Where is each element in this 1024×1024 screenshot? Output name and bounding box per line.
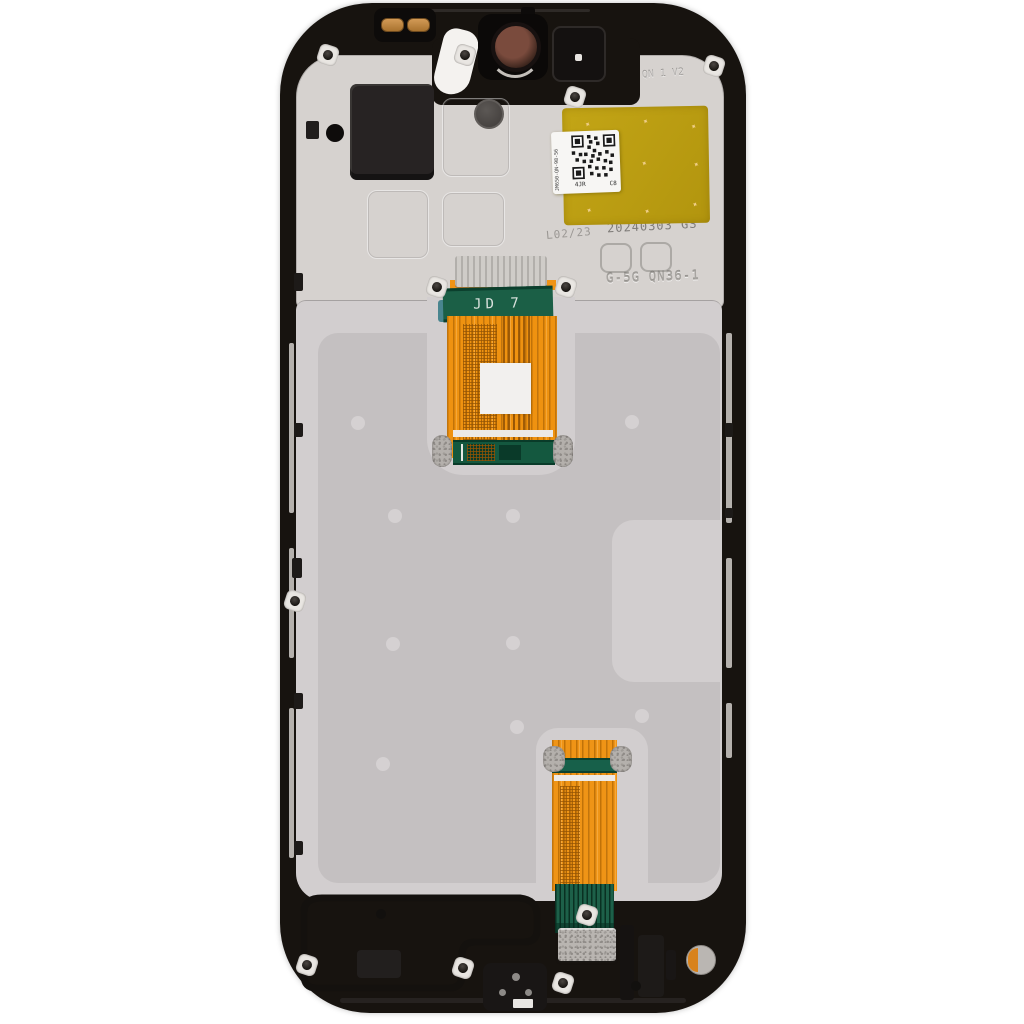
screw-boss — [631, 981, 641, 991]
coil-contact-copper — [688, 948, 698, 972]
microphone-hole — [326, 124, 344, 142]
frame-inner-rail — [726, 558, 732, 668]
product-photo-canvas: 20240303 GS G-5G QN36-1 L02/23 QN 1 V2 ✦… — [0, 0, 1024, 1024]
sponge-pad — [610, 746, 632, 772]
frame-clip — [306, 121, 319, 139]
sponge-pad — [432, 435, 452, 467]
frame-notch — [294, 841, 303, 855]
qr-label-side-text: JM650-QN-98-56 — [553, 135, 561, 191]
plate-dimple — [386, 637, 400, 651]
plate-dimple — [625, 415, 639, 429]
bottom-black-component — [666, 950, 676, 980]
frame-inner-rail — [289, 708, 294, 858]
qr-label-bottom-left: 4JR — [575, 181, 586, 188]
qr-label-bottom-right: C8 — [609, 180, 616, 187]
plate-dimple — [506, 509, 520, 523]
speaker-shield-back — [350, 84, 434, 180]
earpiece-sensor-module — [552, 26, 606, 82]
bottom-flex-shield — [558, 928, 616, 961]
embossed-panel-outline — [367, 190, 429, 259]
embossed-square — [600, 243, 632, 273]
frame-notch — [294, 693, 303, 709]
bracket-label — [513, 999, 533, 1008]
sensor-window — [575, 54, 582, 61]
plate-dimple — [388, 509, 402, 523]
frame-notch — [725, 508, 733, 518]
coil-contact — [686, 945, 716, 975]
embossed-panel-outline — [442, 192, 505, 247]
charging-port-bracket — [483, 963, 547, 1011]
bottom-flex-trace-hatch — [560, 786, 580, 886]
flex-green-band-bottom — [453, 440, 555, 465]
embossed-panel-outline — [442, 98, 510, 177]
bracket-hole — [499, 989, 506, 996]
frame-notch — [294, 273, 303, 291]
flex-band-mark — [461, 444, 463, 461]
sponge-pad — [553, 435, 573, 467]
plate-dimple — [635, 709, 649, 723]
antenna-line — [430, 9, 590, 12]
flex-white-strip — [453, 430, 553, 437]
flex-connector-shield — [455, 256, 547, 287]
phone-display-assembly: 20240303 GS G-5G QN36-1 L02/23 QN 1 V2 ✦… — [280, 3, 746, 1013]
antenna-contact-block — [374, 8, 436, 42]
front-camera-housing — [478, 14, 548, 80]
bracket-hole — [525, 989, 532, 996]
bottom-black-component — [638, 935, 664, 997]
plate-dimple — [351, 416, 365, 430]
flex-band-slot — [499, 445, 521, 460]
gold-contact-pad — [407, 18, 430, 32]
bracket-hole — [512, 973, 520, 981]
bottom-flex-white-strip — [554, 775, 615, 781]
screw-boss — [376, 909, 386, 919]
loudspeaker-back — [357, 950, 401, 978]
frame-inner-rail — [726, 703, 732, 758]
frame-notch — [725, 423, 733, 437]
frame-notch — [292, 558, 302, 578]
flex-band-slot — [467, 444, 495, 461]
qr-serial-label: JM650-QN-98-56 4JR C8 — [551, 130, 621, 194]
camera-ring-highlight — [489, 26, 541, 78]
flex-band-slot — [525, 445, 545, 460]
plate-dimple — [376, 757, 390, 771]
qr-label-bottom-row: 4JR C8 — [575, 180, 617, 188]
frame-notch — [294, 423, 303, 437]
flex-cable-label-text: JD 7 — [473, 295, 523, 312]
flex-white-label — [480, 363, 531, 414]
qr-code — [571, 134, 617, 180]
plate-dimple — [506, 636, 520, 650]
sponge-pad — [543, 746, 565, 772]
plate-dimple — [510, 720, 524, 734]
right-relief-notch — [612, 520, 720, 682]
gold-contact-pad — [381, 18, 404, 32]
